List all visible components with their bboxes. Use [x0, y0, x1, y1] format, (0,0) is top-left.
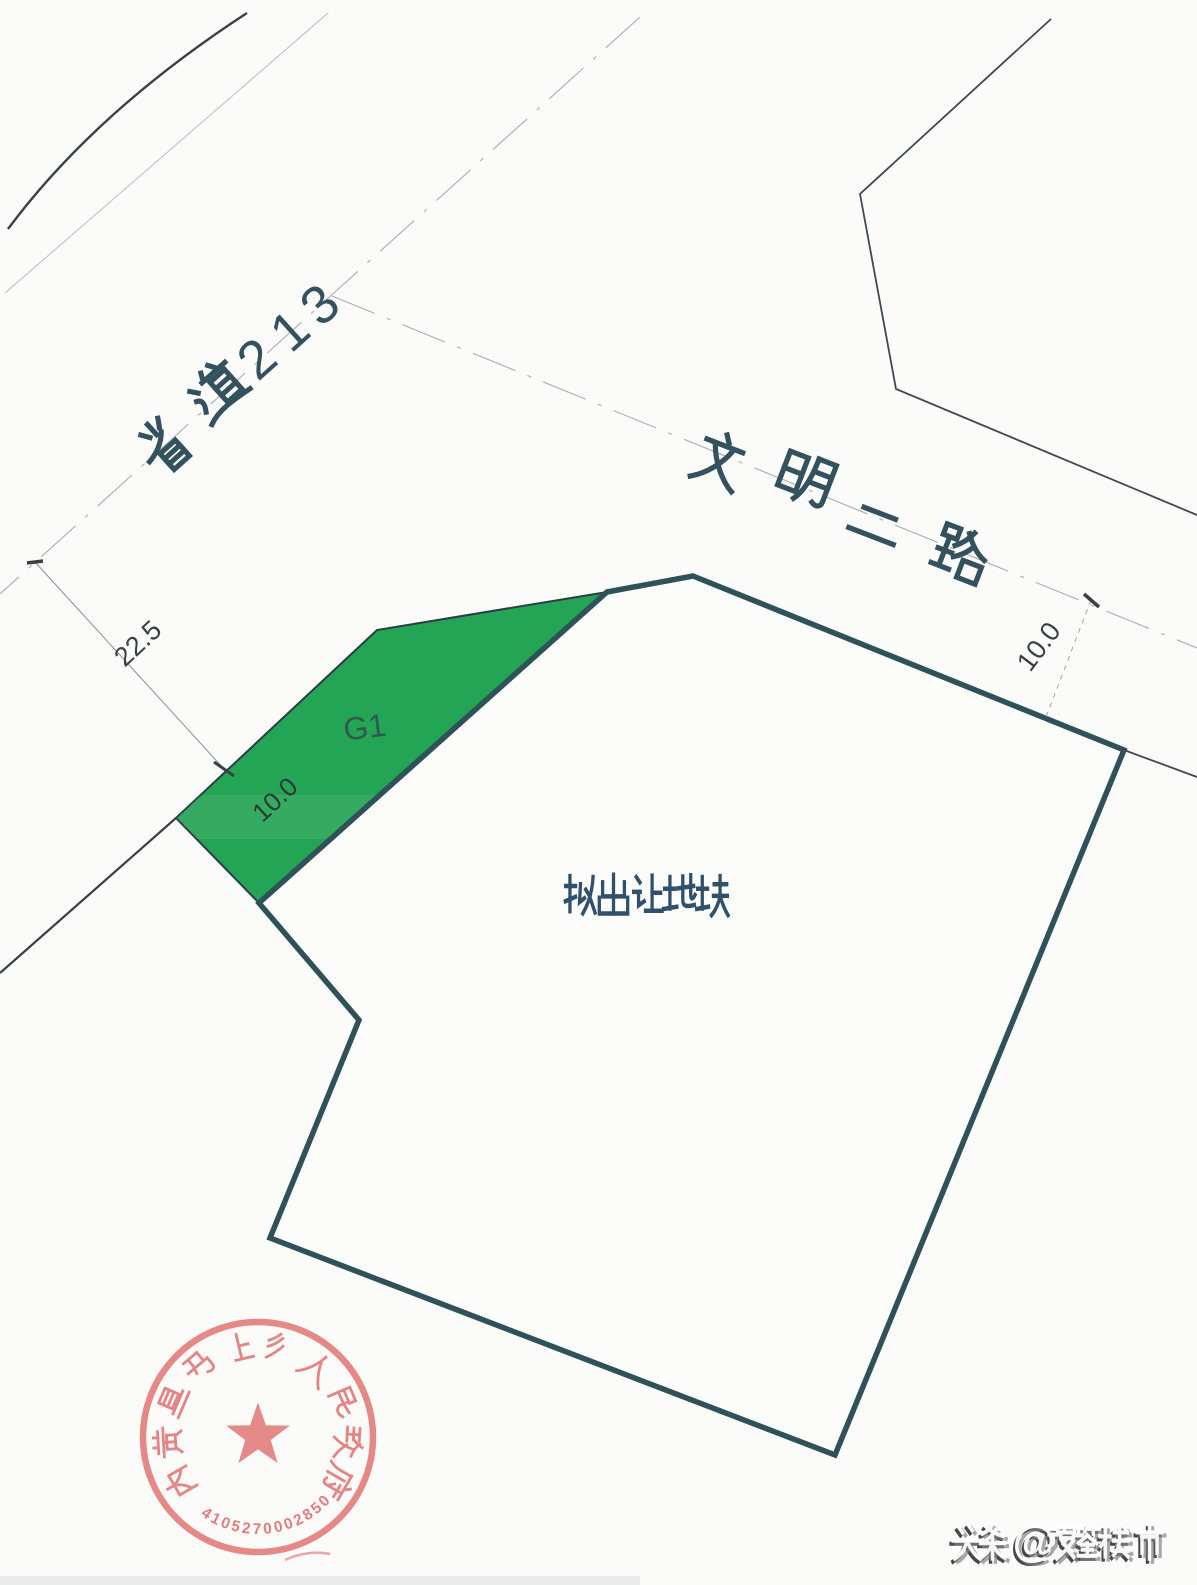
svg-text:0: 0 [262, 1520, 272, 1538]
svg-text:G1: G1 [341, 707, 388, 748]
svg-text:@: @ [1013, 1517, 1056, 1566]
svg-text:7: 7 [253, 1521, 262, 1538]
